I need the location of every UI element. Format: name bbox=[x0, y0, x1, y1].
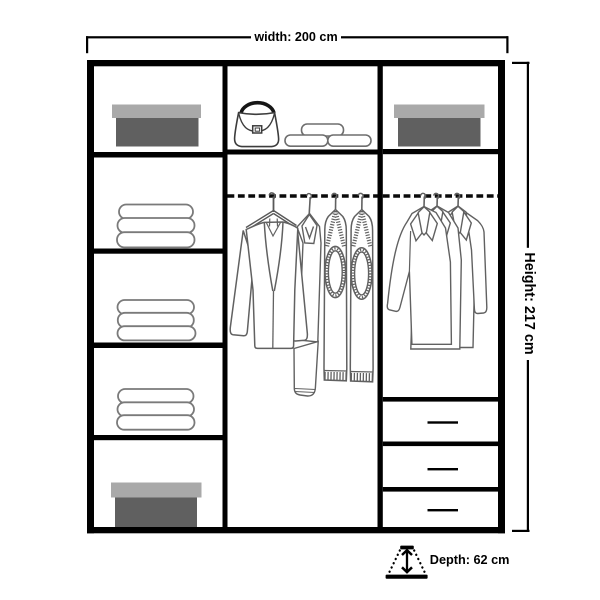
svg-text:Depth: 62 cm: Depth: 62 cm bbox=[430, 553, 510, 567]
svg-text:width: 200 cm: width: 200 cm bbox=[253, 30, 337, 44]
svg-text:Height: 217 cm: Height: 217 cm bbox=[521, 252, 537, 354]
